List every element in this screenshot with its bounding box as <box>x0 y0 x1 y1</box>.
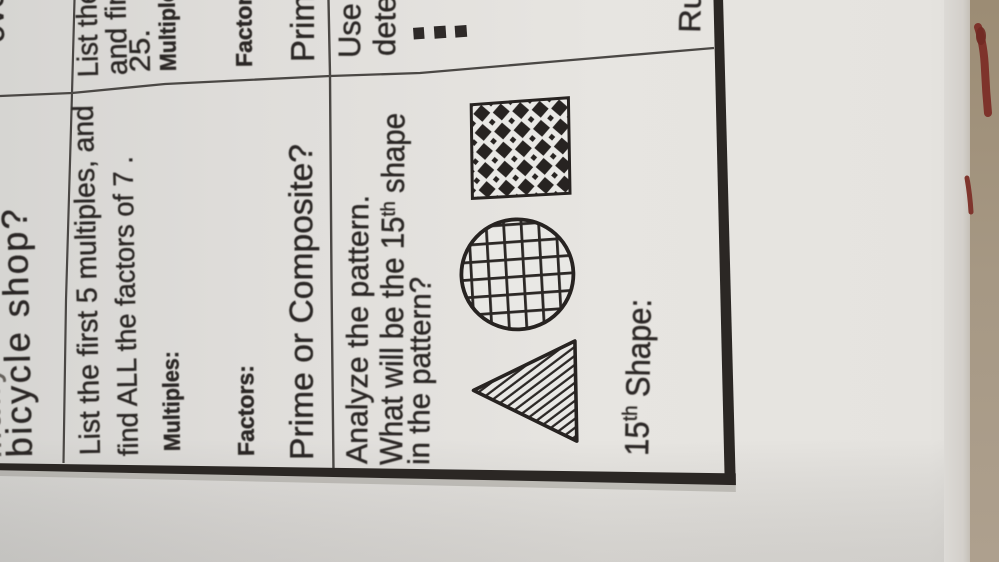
svg-text:25.: 25. <box>124 29 157 73</box>
svg-text:in the pattern?: in the pattern? <box>403 277 438 465</box>
svg-text:over?: over? <box>0 0 12 44</box>
svg-text:Multiples:: Multiples: <box>153 0 181 71</box>
svg-text:Analyze the pattern.: Analyze the pattern. <box>341 195 375 464</box>
svg-text:15th Shape:: 15th Shape: <box>618 298 658 456</box>
svg-text:Prime or Composite?: Prime or Composite? <box>282 144 320 460</box>
svg-text:Use the rule to: Use the rule to <box>332 0 368 58</box>
svg-text:find ALL the factors of 7 .: find ALL the factors of 7 . <box>107 156 144 457</box>
svg-text:Multiples:: Multiples: <box>157 351 185 451</box>
svg-text:Factors:: Factors: <box>230 0 257 67</box>
svg-text:Factors:: Factors: <box>232 365 259 456</box>
svg-text:determine the: determine the <box>367 0 403 56</box>
svg-text:Rule:: Rule: <box>672 0 709 33</box>
svg-text:Prime or Composite?: Prime or Composite? <box>283 0 321 62</box>
